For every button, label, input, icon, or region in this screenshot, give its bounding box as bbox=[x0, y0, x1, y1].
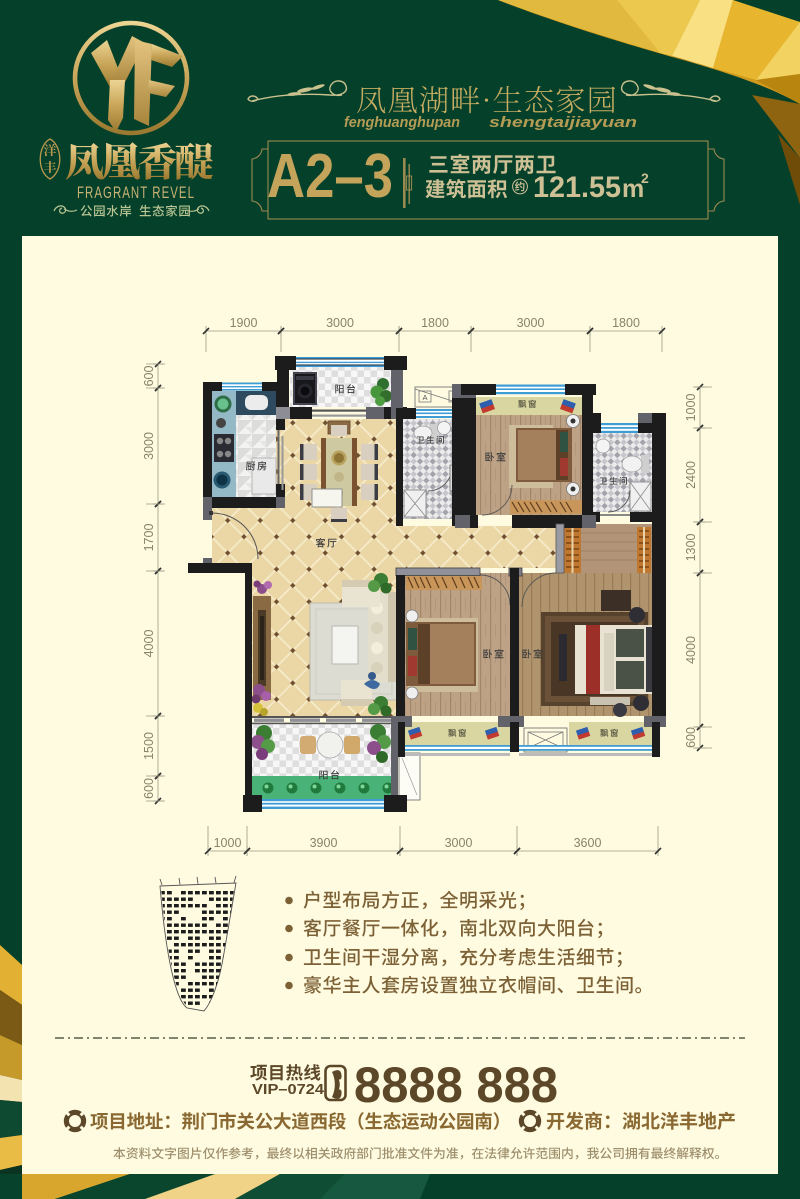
svg-text:2: 2 bbox=[641, 170, 649, 186]
svg-text:fenghuanghupan: fenghuanghupan bbox=[344, 115, 460, 131]
svg-text:1000: 1000 bbox=[214, 836, 242, 850]
svg-text:VIP–0724: VIP–0724 bbox=[252, 1081, 325, 1098]
svg-text:3600: 3600 bbox=[574, 836, 602, 850]
svg-text:1500: 1500 bbox=[142, 732, 156, 760]
svg-text:1900: 1900 bbox=[230, 316, 258, 330]
svg-text:A: A bbox=[422, 393, 427, 402]
svg-text:FRAGRANT REVEL: FRAGRANT REVEL bbox=[77, 184, 195, 202]
svg-text:1000: 1000 bbox=[684, 394, 698, 422]
svg-text:4000: 4000 bbox=[142, 630, 156, 658]
svg-text:121.55: 121.55 bbox=[533, 171, 621, 204]
svg-text:600: 600 bbox=[142, 778, 156, 799]
svg-text:600: 600 bbox=[142, 366, 156, 387]
svg-text:1300: 1300 bbox=[684, 534, 698, 562]
svg-text:3000: 3000 bbox=[517, 316, 545, 330]
svg-text:3000: 3000 bbox=[142, 432, 156, 460]
svg-text:3900: 3900 bbox=[310, 836, 338, 850]
svg-text:1700: 1700 bbox=[142, 524, 156, 552]
svg-text:A2–3: A2–3 bbox=[267, 142, 393, 211]
svg-text:shengtaijiayuan: shengtaijiayuan bbox=[489, 115, 637, 131]
svg-text:2400: 2400 bbox=[684, 461, 698, 489]
svg-text:1800: 1800 bbox=[421, 316, 449, 330]
svg-text:4000: 4000 bbox=[684, 636, 698, 664]
svg-text:3000: 3000 bbox=[445, 836, 473, 850]
svg-text:8888 888: 8888 888 bbox=[354, 1057, 558, 1113]
svg-text:1800: 1800 bbox=[612, 316, 640, 330]
svg-text:3000: 3000 bbox=[326, 316, 354, 330]
svg-text:600: 600 bbox=[684, 727, 698, 748]
